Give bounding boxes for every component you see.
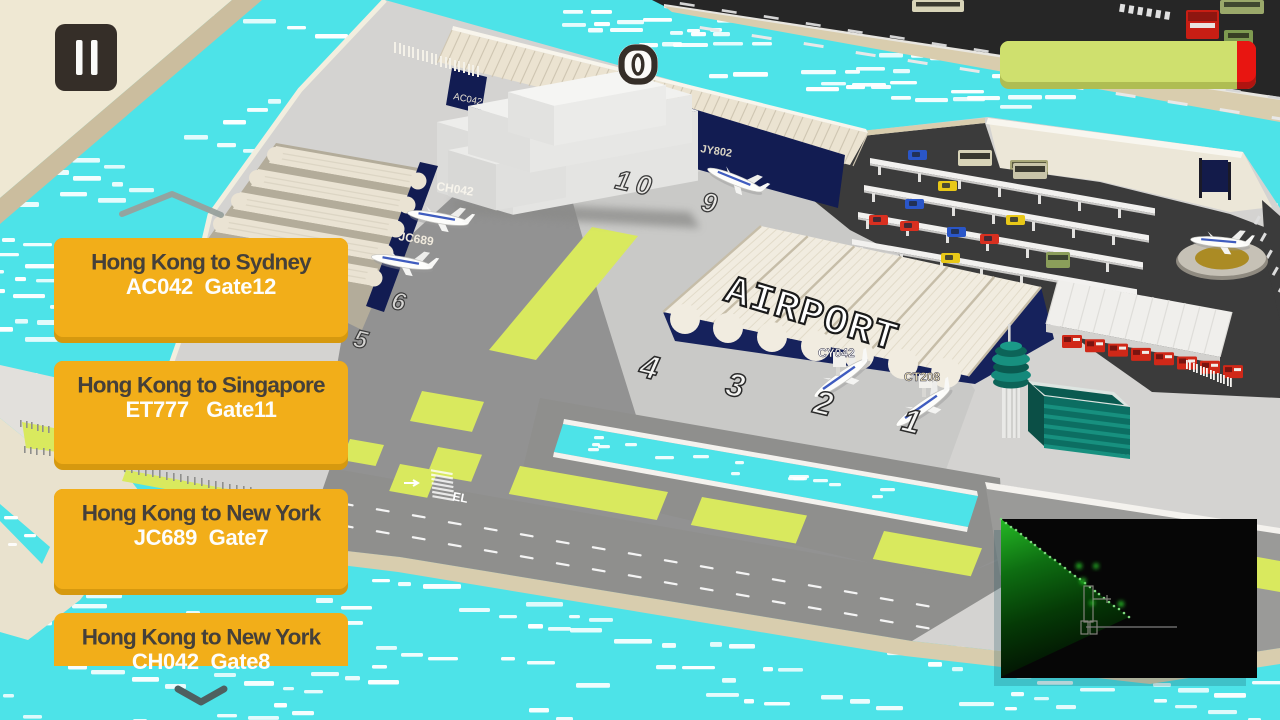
- svg-text:ET777 Gate11: ET777 Gate11: [125, 397, 276, 422]
- svg-text:CY042: CY042: [818, 346, 855, 360]
- svg-text:Hong Kong to Sydney: Hong Kong to Sydney: [91, 250, 312, 275]
- svg-text:Hong Kong to New York: Hong Kong to New York: [82, 625, 322, 650]
- svg-text:JC689 Gate7: JC689 Gate7: [134, 525, 269, 550]
- svg-text:CH042 Gate8: CH042 Gate8: [132, 649, 270, 674]
- svg-text:AC042 Gate12: AC042 Gate12: [126, 274, 276, 299]
- svg-text:Hong Kong to Singapore: Hong Kong to Singapore: [77, 373, 325, 398]
- svg-text:Hong Kong to New York: Hong Kong to New York: [82, 501, 322, 526]
- svg-text:CT208: CT208: [904, 370, 940, 384]
- svg-text:EL: EL: [451, 489, 469, 506]
